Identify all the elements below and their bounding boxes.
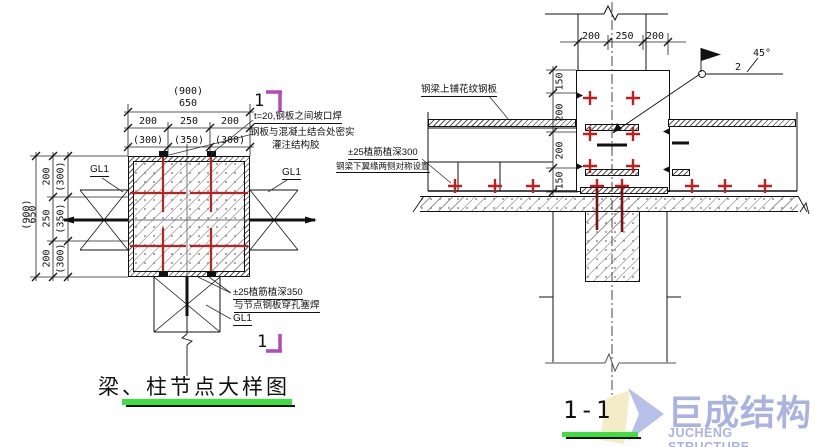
right-leader-lines (422, 96, 509, 183)
dim-200-s3: 200 (42, 242, 53, 276)
dim-650-side: 650 (28, 198, 39, 232)
concrete-slab (420, 196, 798, 212)
section-number-top: 1 (254, 92, 264, 110)
rdim-200-t3: 200 (643, 31, 667, 42)
stiffener-strip-upper (585, 124, 639, 131)
rdim-200-s3: 200 (555, 134, 566, 168)
gl1-label-top-right: GL1 (282, 167, 301, 180)
section-label-1-1: 1-1 (563, 396, 612, 424)
checkered-plate-right (668, 119, 796, 127)
rdim-250-t2: 250 (612, 31, 637, 42)
beam-right-arrow (305, 217, 317, 224)
right-rebar-note1: ±25植筋植深300 (348, 147, 418, 160)
concrete-stub (585, 212, 640, 282)
dim-350-t2: (350) (172, 135, 206, 146)
logo-text-en: JUCHENG STRUCTURE (668, 426, 814, 447)
weld-field-flag (701, 48, 721, 61)
dim-200-t1: 200 (135, 116, 161, 127)
section-underline-black (566, 437, 641, 439)
dim-300-s3: (300) (56, 242, 67, 276)
section-number-bottom: 1 (257, 333, 267, 351)
gl1-label-top-left: GL1 (90, 164, 109, 177)
rdim-150-s1: 150 (555, 65, 566, 99)
dim-300-t1: (300) (131, 135, 165, 146)
title-underline-black (126, 405, 295, 407)
dim-250-s2: 250 (42, 202, 53, 236)
dim-650-top: 650 (170, 98, 206, 109)
dim-900-top: (900) (166, 86, 210, 97)
section-mark-bottom (266, 334, 282, 351)
dim-200-t3: 200 (217, 116, 243, 127)
weld-angle-label: 45° (750, 48, 774, 59)
drawing-title: 梁、柱节点大样图 (98, 371, 290, 401)
stiffener-strip-lower (585, 169, 639, 176)
column-section-concrete (133, 161, 245, 272)
rdim-150-s4: 150 (555, 164, 566, 198)
flange-cleat-right (672, 169, 690, 176)
dim-350-s2: (350) (56, 202, 67, 236)
dim-250-t2: 250 (176, 116, 202, 127)
beam-bottom (154, 277, 220, 376)
dim-200-s1: 200 (42, 160, 53, 194)
weld-size-label: 2 (733, 62, 743, 73)
plate-note: 钢梁上铺花纹钢板 (421, 84, 497, 97)
rdim-200-t1: 200 (579, 31, 603, 42)
beam-left (64, 190, 128, 250)
beam-right (250, 190, 315, 250)
weld-note-line2: 钢板与混凝土结合处密实 (250, 127, 355, 139)
section-mark-top (266, 92, 282, 112)
right-rebar-note2: 钢梁下翼缘两侧对称设置 (336, 160, 430, 173)
weld-note-line1: t=20,钢板之间坡口焊 (254, 111, 342, 124)
rebar-note-gl1: GL1 (233, 313, 252, 326)
dim-300-s1: (300) (56, 160, 67, 194)
bottom-break (545, 354, 676, 371)
rebar-note-line1: ±25植筋植深350 (233, 287, 303, 300)
weld-note-line3: 灌注结构胶 (272, 140, 320, 152)
base-plate-strip (580, 187, 668, 194)
rebar-note-line2: 与节点钢板穿孔塞焊 (234, 300, 320, 313)
drawing-canvas: (900) 650 200 250 200 (300) (350) (300) … (0, 0, 814, 447)
column-section-plate-band (128, 156, 250, 277)
rdim-200-s2: 200 (555, 96, 566, 130)
dim-300-t3: (300) (213, 135, 247, 146)
